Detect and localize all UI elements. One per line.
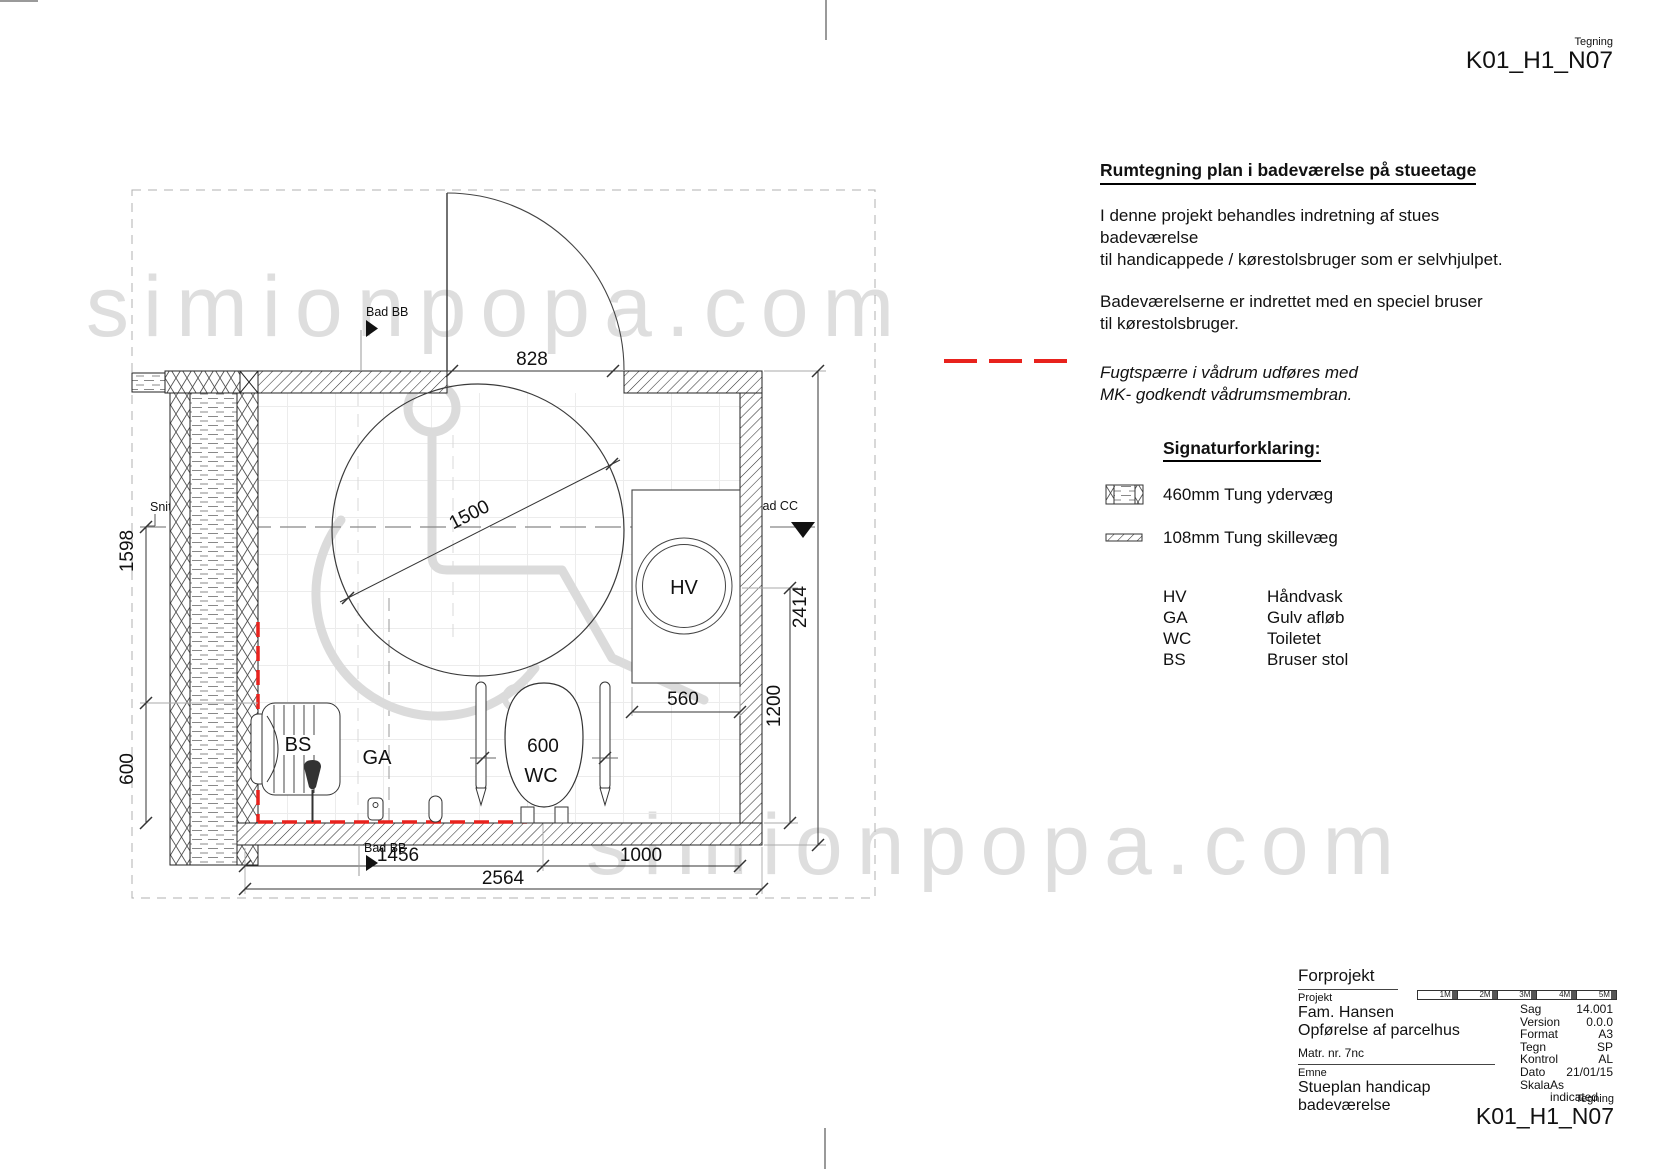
field-label: Sag	[1520, 1003, 1541, 1016]
abbreviation-table: HV Håndvask GA Gulv afløb WC Toiletet BS…	[1163, 586, 1525, 670]
bad-bb-marker-top: Bad BB	[361, 305, 408, 371]
scale-seg: 2M	[1458, 991, 1498, 999]
scale-seg: 4M	[1537, 991, 1577, 999]
grab-rail-right	[600, 682, 610, 790]
dim-left-lower: 600	[117, 753, 138, 785]
label-hv: HV	[670, 577, 698, 599]
field-dato: Dato 21/01/15	[1520, 1066, 1613, 1079]
floor-fitting	[429, 796, 442, 822]
field-value: A3	[1598, 1028, 1613, 1041]
right-wall	[740, 393, 762, 845]
abbr-row-wc: WC Toiletet	[1163, 628, 1525, 649]
drawing-sheet: simionpopa.com simionpopa.com	[0, 0, 1654, 1169]
notes-p1-l2: til handicappede / kørestolsbruger som e…	[1100, 250, 1503, 269]
notes-p2-l2: til kørestolsbruger.	[1100, 314, 1239, 333]
divider	[1298, 1064, 1495, 1065]
left-wall-insulation	[190, 393, 237, 865]
door-swing-arc	[447, 193, 624, 370]
notes-paragraph-2: Badeværelserne er indrettet med en speci…	[1100, 291, 1530, 335]
abbr-desc: Gulv afløb	[1267, 607, 1344, 628]
field-sag: Sag 14.001	[1520, 1003, 1613, 1016]
notes-paragraph-1: I denne projekt behandles indretning af …	[1100, 205, 1530, 271]
outer-wall-symbol	[1105, 484, 1145, 506]
legend-block: Signaturforklaring: 460mm Tung ydervæg 1…	[1105, 438, 1525, 670]
dim-wc-rails: 600	[527, 736, 559, 757]
abbr-key: BS	[1163, 649, 1267, 670]
grab-rail-left	[476, 682, 486, 790]
door	[447, 193, 624, 371]
abbr-desc: Håndvask	[1267, 586, 1343, 607]
bottom-wall	[237, 823, 762, 845]
project-phase: Forprojekt	[1298, 966, 1618, 986]
scale-seg: 1M	[1418, 991, 1458, 999]
label-wc: WC	[524, 765, 557, 787]
field-format: Format A3	[1520, 1028, 1613, 1041]
legend-item-partition-wall: 108mm Tung skillevæg	[1105, 528, 1525, 548]
partition-wall-symbol	[1105, 533, 1145, 543]
tb-drawing-number: K01_H1_N07	[1408, 1103, 1614, 1130]
label-ga: GA	[363, 747, 393, 769]
legend-title: Signaturforklaring:	[1163, 438, 1321, 462]
membrane-note-l2: MK- godkendt vådrumsmembran.	[1100, 385, 1352, 404]
abbr-key: WC	[1163, 628, 1267, 649]
notes-title: Rumtegning plan i badeværelse på stueeta…	[1100, 160, 1476, 185]
abbr-row-bs: BS Bruser stol	[1163, 649, 1525, 670]
field-label: Dato	[1520, 1066, 1545, 1079]
notes-block: Rumtegning plan i badeværelse på stueeta…	[1100, 160, 1530, 406]
dim-left-upper: 1598	[117, 530, 138, 572]
abbr-key: GA	[1163, 607, 1267, 628]
dim-vanity: 560	[667, 689, 699, 710]
abbr-row-hv: HV Håndvask	[1163, 586, 1525, 607]
abbr-desc: Bruser stol	[1267, 649, 1348, 670]
label-bs: BS	[285, 734, 312, 756]
top-wall-left-leaf	[165, 371, 240, 393]
sheet-header: Tegning K01_H1_N07	[1400, 36, 1613, 74]
top-wall-left	[258, 371, 447, 393]
dim-basin-to-wall: 1200	[764, 685, 785, 727]
scale-bar: 1M 2M 3M 4M 5M	[1417, 990, 1617, 1000]
left-wall-outer-leaf	[170, 393, 190, 865]
membrane-note: Fugtspærre i vådrum udføres med MK- godk…	[1100, 362, 1530, 406]
legend-item-label: 108mm Tung skillevæg	[1163, 528, 1338, 548]
abbr-key: HV	[1163, 586, 1267, 607]
top-wall-right	[624, 371, 762, 393]
notes-p2-l1: Badeværelserne er indrettet med en speci…	[1100, 292, 1483, 311]
legend-item-outer-wall: 460mm Tung ydervæg	[1105, 484, 1525, 506]
dim-door-group: 828	[446, 349, 624, 377]
dim-bottom-right: 1000	[620, 845, 662, 866]
scale-seg: 5M	[1577, 991, 1616, 999]
abbr-row-ga: GA Gulv afløb	[1163, 607, 1525, 628]
membrane-dash-sample	[944, 352, 1079, 370]
divider	[1298, 989, 1398, 990]
left-wall-inner-leaf	[237, 393, 258, 865]
toilet-leg-left	[521, 807, 534, 823]
legend-item-label: 460mm Tung ydervæg	[1163, 485, 1333, 505]
dim-bottom-total: 2564	[482, 868, 525, 889]
membrane-note-l1: Fugtspærre i vådrum udføres med	[1100, 363, 1358, 382]
notes-p1-l1: I denne projekt behandles indretning af …	[1100, 206, 1439, 247]
title-block-fields: Sag 14.001 Version 0.0.0 Format A3 Tegn …	[1520, 1003, 1613, 1104]
section-arrow-right	[791, 522, 815, 538]
top-wall-end-cap	[132, 373, 165, 392]
field-value: 14.001	[1576, 1003, 1613, 1016]
field-label: Format	[1520, 1028, 1558, 1041]
field-value: 21/01/15	[1566, 1066, 1613, 1079]
bad-bb-label-top: Bad BB	[366, 305, 408, 319]
title-block: Forprojekt Projekt Fam. Hansen Opførelse…	[1298, 966, 1618, 1114]
drawing-number: K01_H1_N07	[1400, 48, 1613, 74]
drain-symbol	[368, 798, 383, 820]
dim-room-outer: 2414	[790, 585, 811, 628]
scale-seg: 3M	[1498, 991, 1538, 999]
toilet-leg-right	[555, 807, 568, 823]
washbasin-unit: HV	[632, 490, 740, 683]
bad-bb-label-bottom: Bad BB	[364, 841, 406, 855]
dim-door: 828	[516, 349, 548, 370]
abbr-desc: Toiletet	[1267, 628, 1321, 649]
